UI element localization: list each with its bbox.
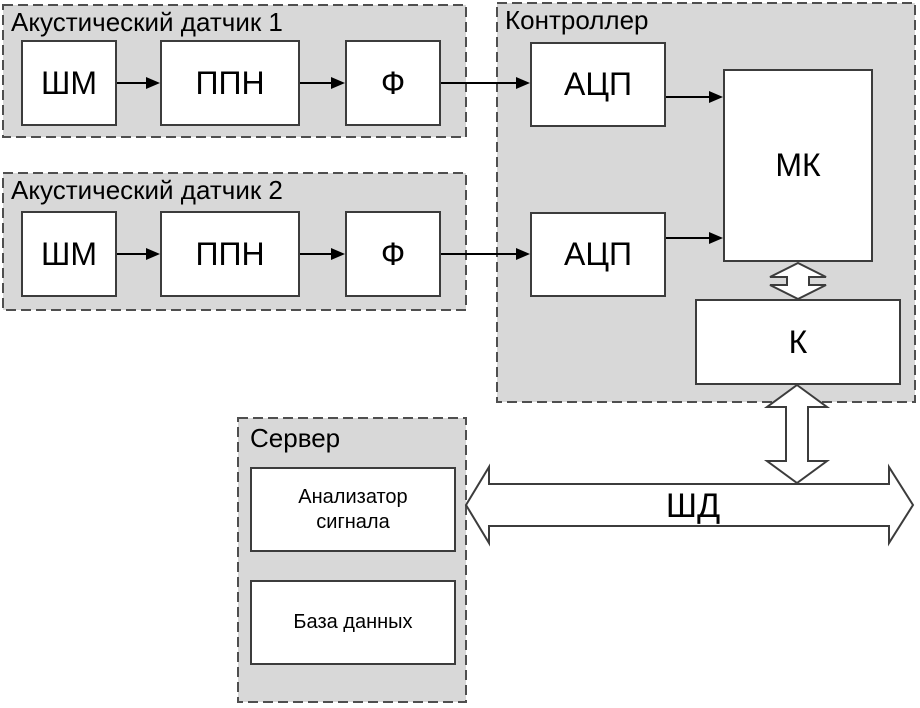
block-mcu: МК bbox=[723, 69, 873, 262]
controller-label: Контроллер bbox=[505, 6, 648, 36]
block-adc-1-label: АЦП bbox=[564, 66, 632, 103]
block-shm-1: ШМ bbox=[21, 40, 117, 126]
block-k-label: К bbox=[789, 324, 808, 361]
block-signal-analyzer: Анализатор сигнала bbox=[250, 467, 456, 552]
block-ppn-1: ППН bbox=[160, 40, 300, 126]
block-ppn-1-label: ППН bbox=[195, 65, 264, 102]
block-database: База данных bbox=[250, 580, 456, 665]
block-k: К bbox=[695, 299, 901, 385]
block-adc-2-label: АЦП bbox=[564, 236, 632, 273]
block-adc-2: АЦП bbox=[530, 212, 666, 297]
sensor1-label: Акустический датчик 1 bbox=[11, 8, 283, 38]
block-adc-1: АЦП bbox=[530, 42, 666, 127]
block-signal-analyzer-label: Анализатор сигнала bbox=[283, 485, 423, 535]
data-bus-label: ШД bbox=[639, 487, 747, 525]
block-filter-1-label: Ф bbox=[381, 65, 405, 102]
diagram-canvas: Акустический датчик 1 Акустический датчи… bbox=[0, 0, 920, 708]
block-filter-1: Ф bbox=[345, 40, 441, 126]
block-database-label: База данных bbox=[293, 610, 412, 635]
block-mcu-label: МК bbox=[775, 147, 820, 184]
block-shm-1-label: ШМ bbox=[41, 65, 97, 102]
block-shm-2: ШМ bbox=[21, 211, 117, 297]
block-shm-2-label: ШМ bbox=[41, 236, 97, 273]
block-ppn-2: ППН bbox=[160, 211, 300, 297]
sensor2-label: Акустический датчик 2 bbox=[11, 176, 283, 206]
block-filter-2: Ф bbox=[345, 211, 441, 297]
block-filter-2-label: Ф bbox=[381, 236, 405, 273]
server-label: Сервер bbox=[250, 424, 340, 454]
block-ppn-2-label: ППН bbox=[195, 236, 264, 273]
